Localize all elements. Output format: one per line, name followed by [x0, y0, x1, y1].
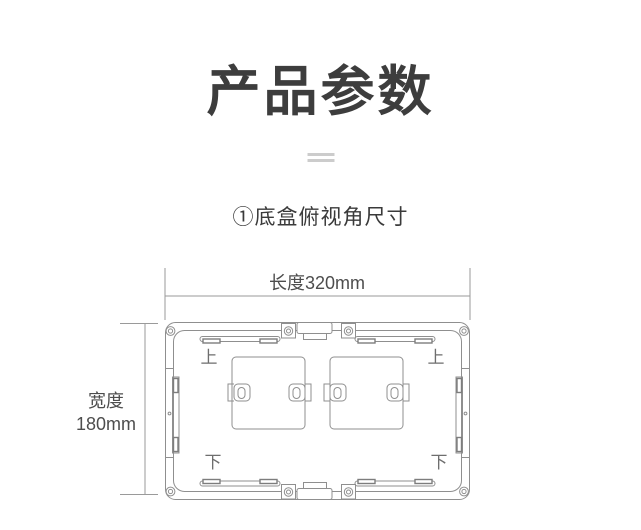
right-edge-rail: [456, 369, 470, 458]
gang-module-left: [228, 357, 311, 429]
orientation-mark-up-right: 上: [428, 348, 445, 367]
top-view-diagram: 长度320mm 宽度 180mm: [0, 0, 641, 530]
product-parameters-section: 产品参数 ①底盒俯视角尺寸 长度320mm 宽度 180mm: [0, 0, 641, 530]
orientation-mark-down-right: 下: [431, 453, 448, 472]
orientation-mark-up-left: 上: [201, 348, 218, 367]
bottom-edge-features: [200, 480, 435, 500]
width-dimension-value: 180mm: [76, 414, 136, 434]
top-center-tab: [297, 323, 332, 334]
width-dimension-label: 宽度: [88, 391, 124, 411]
length-dimension: 长度320mm: [165, 268, 470, 320]
gang-module-right: [324, 357, 409, 429]
length-dimension-label: 长度320mm: [269, 273, 365, 293]
top-edge-features: [200, 323, 435, 344]
orientation-mark-down-left: 下: [205, 453, 222, 472]
bottom-center-tab: [297, 489, 332, 500]
left-edge-rail: [166, 369, 180, 458]
width-dimension: 宽度 180mm: [76, 323, 158, 495]
